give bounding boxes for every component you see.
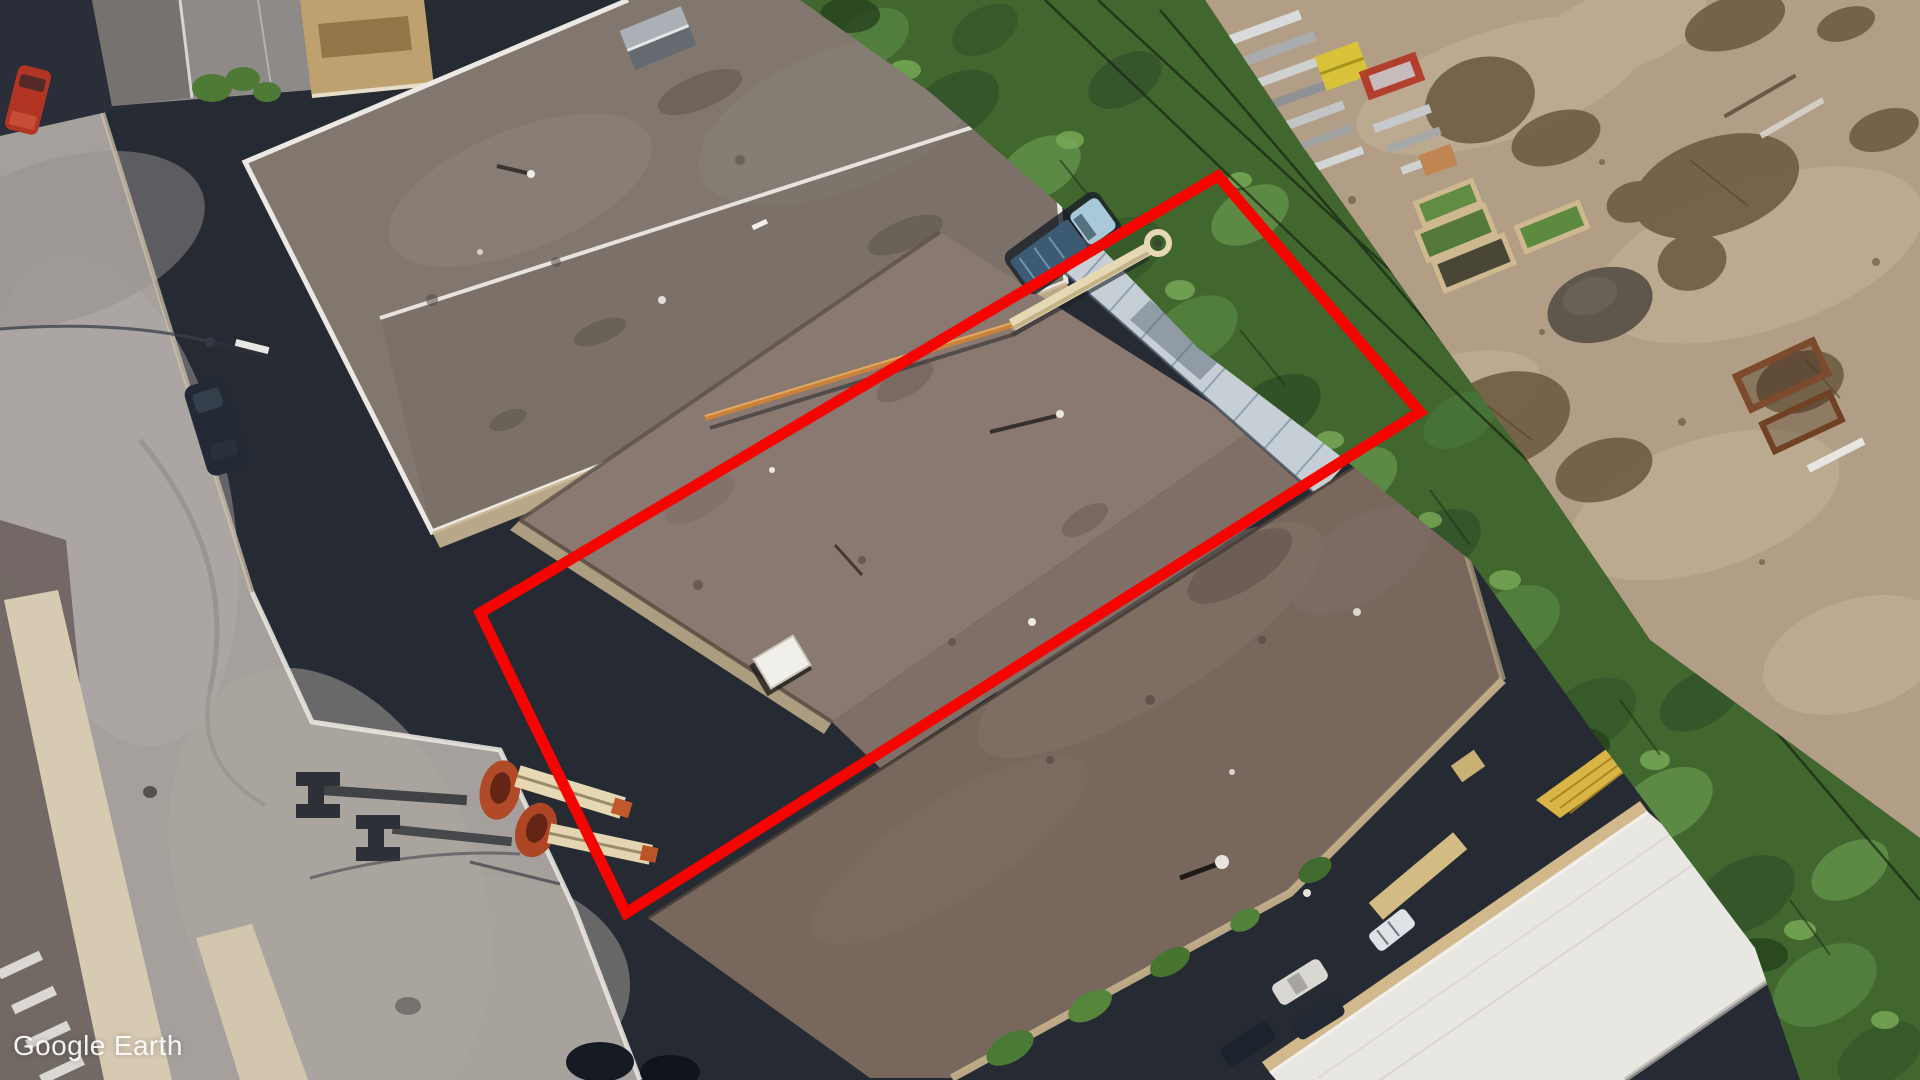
google-earth-viewport[interactable]: Google Earth xyxy=(0,0,1920,1080)
manhole xyxy=(143,786,157,798)
google-earth-watermark: Google Earth xyxy=(13,1030,183,1062)
aerial-imagery[interactable] xyxy=(0,0,1920,1080)
